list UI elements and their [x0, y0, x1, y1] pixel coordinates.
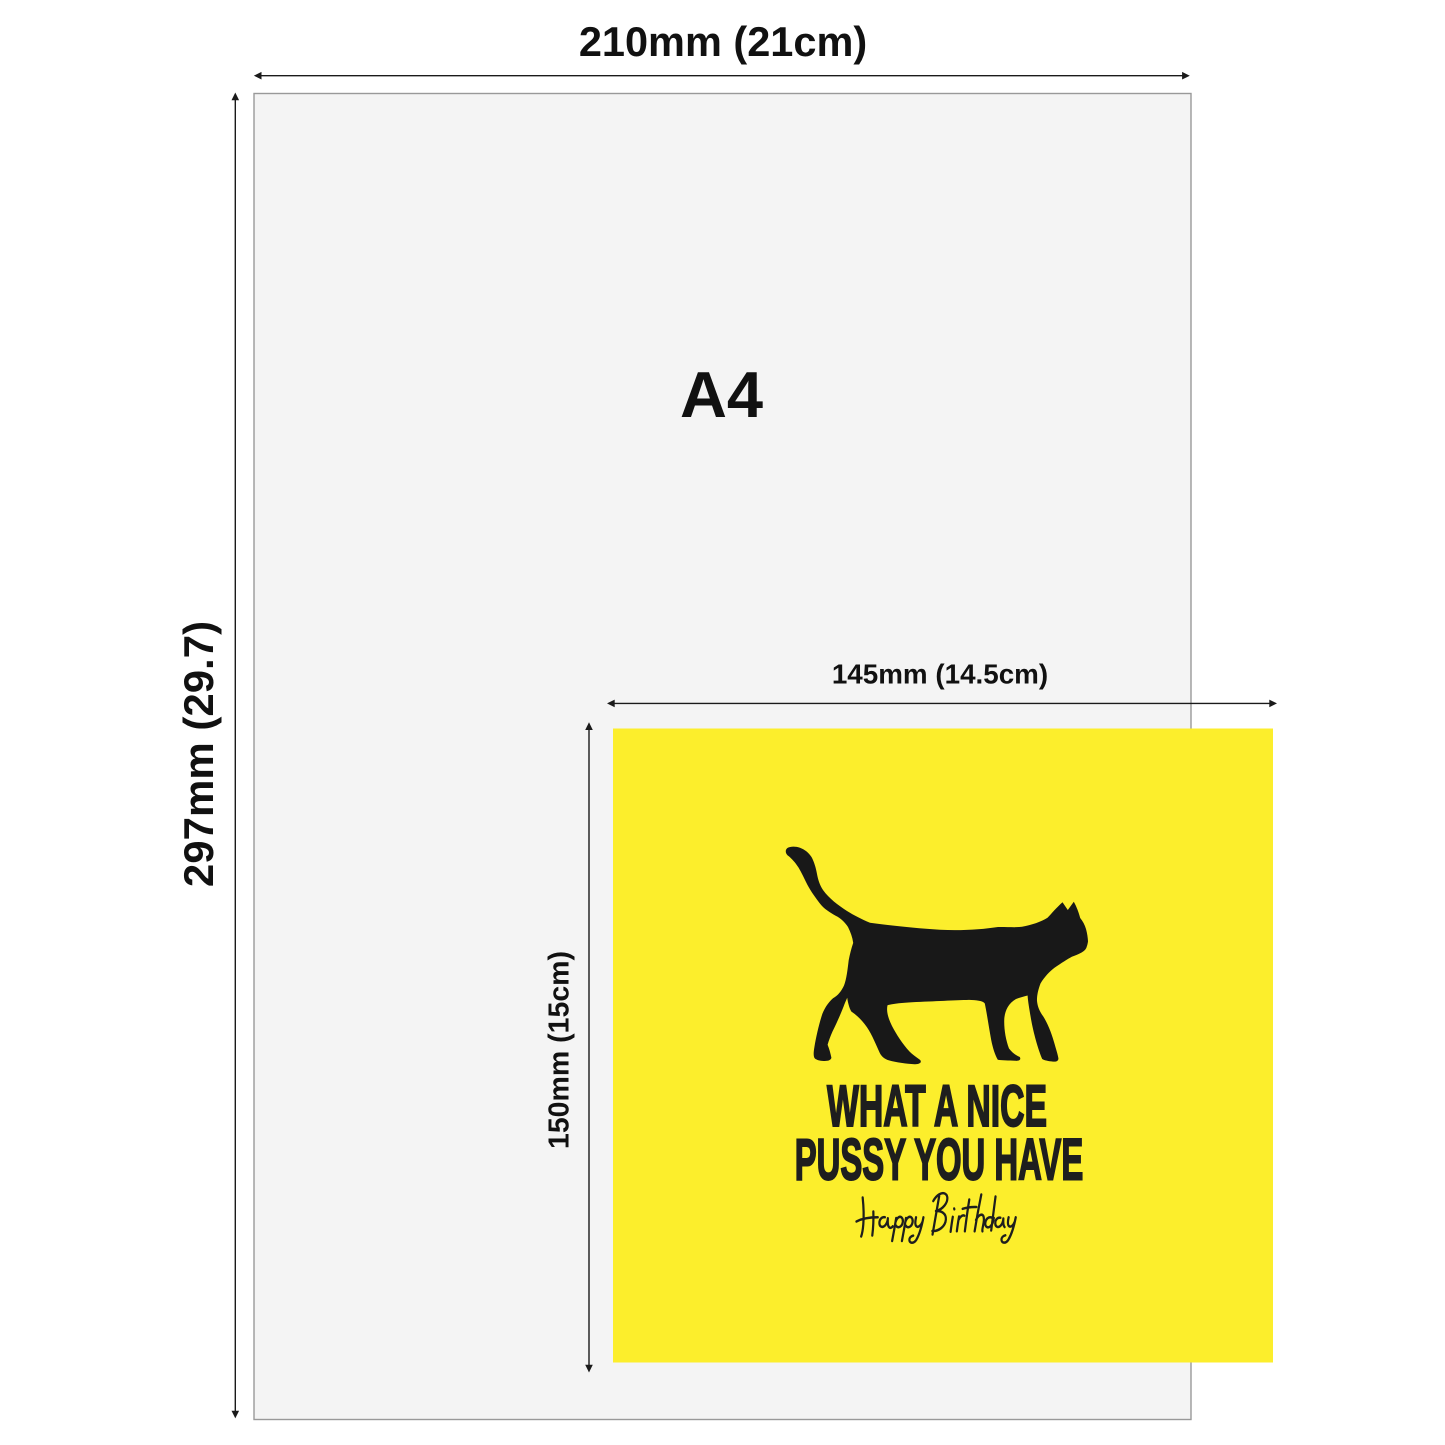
svg-text:150mm (15cm): 150mm (15cm) — [544, 951, 576, 1149]
svg-text:A4: A4 — [680, 358, 763, 431]
svg-text:210mm (21cm): 210mm (21cm) — [579, 18, 867, 65]
svg-text:PUSSY YOU HAVE: PUSSY YOU HAVE — [795, 1127, 1084, 1192]
svg-text:297mm (29.7): 297mm (29.7) — [175, 621, 222, 887]
svg-text:145mm (14.5cm): 145mm (14.5cm) — [832, 659, 1048, 690]
